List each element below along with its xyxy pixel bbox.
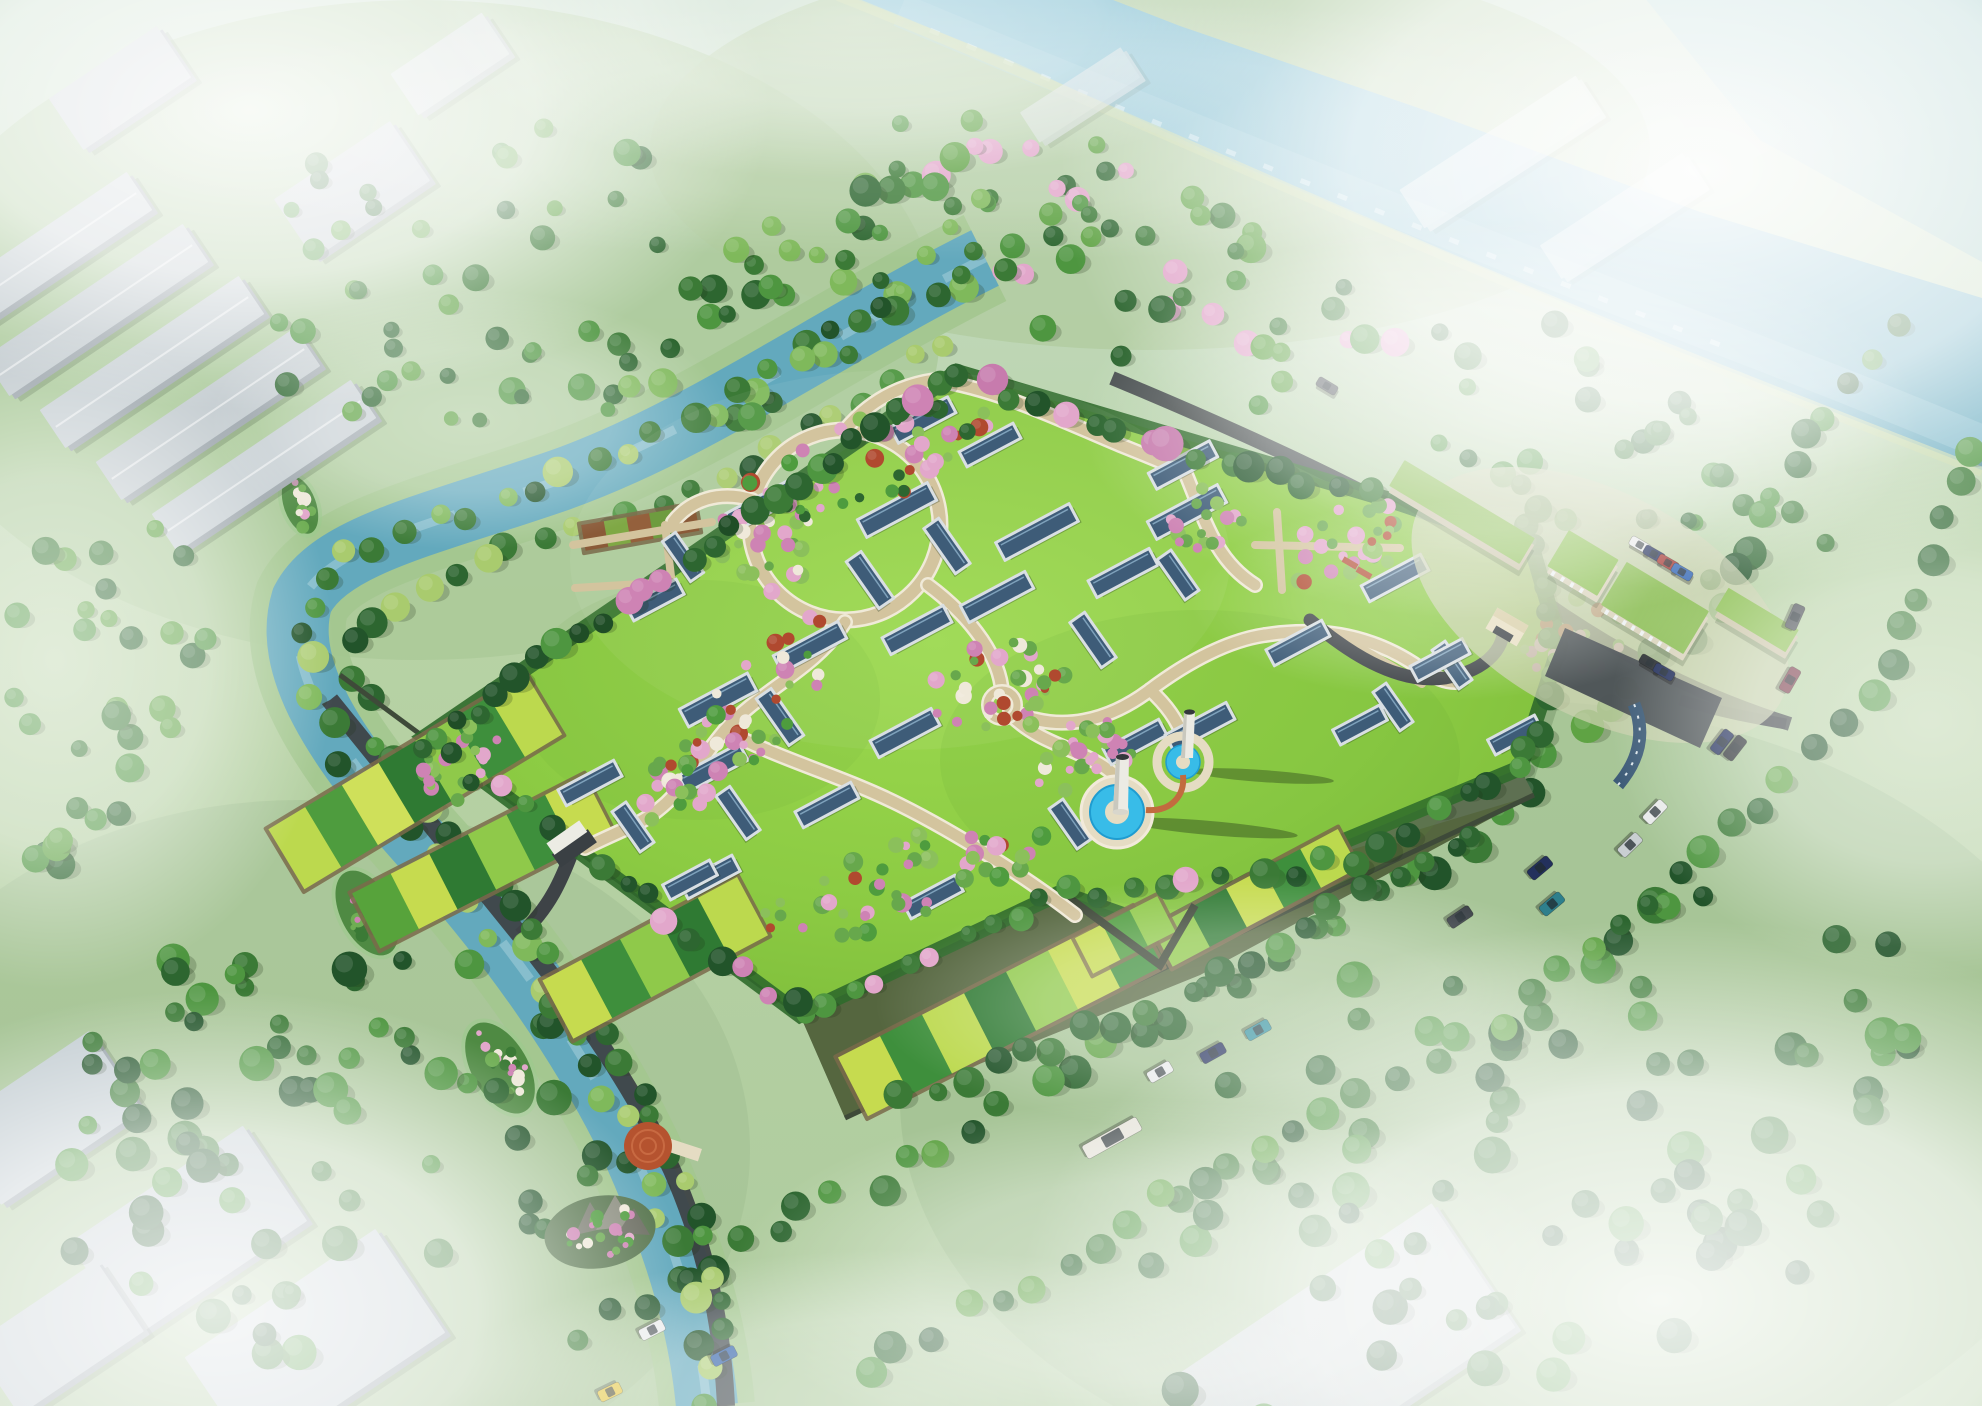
tree — [997, 696, 1011, 710]
tree-highlight — [761, 989, 770, 998]
tree — [416, 763, 431, 778]
tree — [796, 443, 810, 457]
tree-highlight — [334, 541, 346, 553]
tree-highlight — [640, 885, 650, 895]
tree-highlight — [744, 283, 759, 298]
tree — [798, 923, 808, 933]
tree-highlight — [591, 1088, 604, 1101]
tree-highlight — [755, 526, 764, 535]
tree-highlight — [765, 584, 773, 592]
tree-highlight — [619, 1107, 630, 1118]
tree-highlight — [641, 1107, 651, 1117]
tree — [732, 752, 747, 767]
tree-highlight — [848, 983, 857, 992]
tree — [739, 718, 750, 729]
tree-highlight — [708, 707, 718, 717]
tree-highlight — [957, 871, 966, 880]
tree-highlight — [727, 379, 740, 392]
tree-highlight — [473, 707, 483, 717]
tree-highlight — [833, 271, 847, 285]
tree-highlight — [328, 753, 341, 766]
tree-highlight — [992, 650, 1001, 659]
tree-highlight — [428, 730, 439, 741]
tree — [1058, 783, 1073, 798]
tree — [888, 837, 904, 853]
tree — [1037, 675, 1051, 689]
tree-highlight — [542, 817, 555, 830]
tree-highlight — [678, 1174, 687, 1183]
tree-highlight — [734, 958, 744, 968]
tree-highlight — [415, 741, 425, 751]
tree-highlight — [1393, 869, 1403, 879]
tree — [959, 682, 972, 695]
aerial-rendering: Aerial rendering of a green-roof park fa… — [0, 0, 1982, 1406]
tree — [966, 851, 980, 865]
tree-highlight — [503, 893, 519, 909]
tree-highlight — [872, 299, 883, 310]
tree — [981, 722, 990, 731]
tree-highlight — [464, 775, 473, 784]
tree — [855, 493, 864, 502]
tree-highlight — [845, 854, 855, 864]
tree-highlight — [792, 348, 805, 361]
tree-highlight — [788, 475, 802, 489]
tree — [914, 436, 930, 452]
tree-highlight — [448, 566, 459, 577]
tree-highlight — [947, 366, 959, 378]
top-haze — [0, 0, 1982, 260]
tree-highlight — [1056, 404, 1069, 417]
tree — [970, 657, 978, 665]
tree-highlight — [1461, 828, 1472, 839]
tree — [905, 465, 915, 475]
tree-highlight — [768, 635, 777, 644]
tree-highlight — [1032, 317, 1045, 330]
tree — [933, 709, 942, 718]
tree-highlight — [929, 285, 941, 297]
tree-highlight — [795, 332, 809, 346]
tree — [837, 498, 848, 509]
tree-highlight — [711, 949, 726, 964]
tree-highlight — [367, 739, 376, 748]
tree-highlight — [1253, 861, 1268, 876]
tree — [665, 759, 676, 770]
tree-highlight — [1462, 785, 1471, 794]
tree-highlight — [667, 780, 676, 789]
tree-highlight — [485, 684, 498, 697]
tree-highlight — [632, 580, 644, 592]
tower-opening — [1184, 709, 1195, 714]
tree — [891, 897, 905, 911]
tree — [1069, 742, 1081, 754]
tree — [1091, 764, 1102, 775]
tree — [451, 793, 465, 807]
tree — [756, 748, 765, 757]
tree — [771, 695, 780, 704]
tree — [793, 565, 804, 576]
tree — [742, 476, 757, 491]
tree — [741, 660, 751, 670]
tree-highlight — [863, 415, 878, 430]
tree-highlight — [1346, 853, 1359, 866]
tree-highlight — [921, 852, 931, 862]
tree-highlight — [866, 977, 875, 986]
tree — [1066, 766, 1074, 774]
tree-highlight — [761, 277, 773, 289]
tree — [1117, 739, 1128, 750]
tree-highlight — [720, 517, 730, 527]
tree — [1040, 752, 1053, 765]
tree — [1015, 849, 1030, 864]
tree — [1066, 721, 1076, 731]
tree-highlight — [681, 279, 693, 291]
tree-highlight — [1032, 890, 1041, 899]
tree-highlight — [539, 944, 550, 955]
tree-highlight — [767, 487, 782, 502]
tree — [984, 702, 997, 715]
tree-highlight — [419, 576, 433, 590]
tree-highlight — [874, 274, 882, 282]
tree — [645, 812, 659, 826]
tree-highlight — [1450, 840, 1459, 849]
tree-highlight — [1476, 775, 1490, 789]
tree-highlight — [1034, 828, 1044, 838]
tree — [777, 525, 792, 540]
tree — [893, 469, 905, 481]
tree — [885, 484, 898, 497]
tree-highlight — [360, 610, 375, 625]
tree — [903, 859, 913, 869]
tree-highlight — [700, 306, 713, 319]
tower-opening — [1116, 754, 1129, 760]
tree — [874, 879, 885, 890]
tree-highlight — [991, 869, 1001, 879]
tree-highlight — [622, 877, 630, 885]
tree — [1089, 752, 1098, 761]
tree-highlight — [850, 311, 862, 323]
tree-highlight — [841, 347, 850, 356]
tree — [813, 615, 826, 628]
tree — [749, 755, 759, 765]
tree — [777, 651, 790, 664]
tree-highlight — [679, 930, 691, 942]
tree-highlight — [1512, 759, 1523, 770]
tree-highlight — [867, 451, 876, 460]
tree-highlight — [227, 966, 237, 976]
tree-highlight — [449, 712, 458, 721]
tree — [734, 540, 743, 549]
tree — [781, 718, 793, 730]
tree-highlight — [636, 1085, 647, 1096]
tree-highlight — [1054, 741, 1063, 750]
tree-highlight — [710, 763, 720, 773]
tree-highlight — [896, 285, 905, 294]
tree — [1024, 702, 1033, 711]
tree-highlight — [1398, 825, 1410, 837]
tree-highlight — [1429, 798, 1441, 810]
tree-highlight — [384, 595, 399, 610]
tree-highlight — [571, 625, 581, 635]
tree — [674, 798, 687, 811]
tree-highlight — [395, 953, 404, 962]
tree — [803, 651, 811, 659]
tree-highlight — [1416, 853, 1426, 863]
tree — [838, 909, 848, 919]
tree — [681, 764, 693, 776]
tree-highlight — [706, 538, 717, 549]
tree — [1034, 664, 1044, 674]
tree — [739, 740, 748, 749]
tree — [920, 906, 931, 917]
tree-highlight — [519, 797, 528, 806]
tree — [760, 908, 770, 918]
tree-highlight — [1529, 723, 1543, 737]
tree-highlight — [786, 990, 801, 1005]
tree — [835, 928, 850, 943]
tree-highlight — [931, 1085, 940, 1094]
tree-highlight — [493, 777, 504, 788]
tree-highlight — [502, 665, 517, 680]
tree-highlight — [690, 1205, 704, 1219]
tree-highlight — [929, 673, 938, 682]
tree-highlight — [695, 1227, 705, 1237]
tree-highlight — [1012, 671, 1020, 679]
tree-highlight — [759, 361, 769, 371]
tree-highlight — [638, 795, 647, 804]
tree — [920, 840, 931, 851]
tree-highlight — [458, 952, 473, 967]
tree-highlight — [929, 455, 938, 464]
tree — [751, 730, 765, 744]
tree-highlight — [361, 540, 374, 553]
tree-highlight — [595, 615, 605, 625]
tree — [849, 927, 863, 941]
tree-highlight — [930, 373, 943, 386]
tree-highlight — [943, 427, 951, 435]
tree — [811, 680, 822, 691]
tree — [764, 561, 773, 570]
tree-highlight — [335, 955, 353, 973]
tree-highlight — [825, 455, 836, 466]
tree — [693, 738, 702, 747]
tree — [478, 755, 488, 765]
tree — [952, 717, 962, 727]
tree-highlight — [345, 630, 358, 643]
tree — [492, 735, 501, 744]
tree-highlight — [1024, 718, 1032, 726]
tree-highlight — [961, 425, 969, 433]
tree — [775, 910, 787, 922]
tree — [745, 566, 760, 581]
tree-highlight — [822, 896, 830, 904]
tree-highlight — [1640, 897, 1650, 907]
tree — [816, 504, 824, 512]
tree — [675, 786, 689, 800]
tree-highlight — [651, 571, 662, 582]
tree-highlight — [592, 857, 605, 870]
tree — [696, 726, 707, 737]
tree-highlight — [968, 642, 976, 650]
tree — [1086, 724, 1100, 738]
tree — [781, 538, 795, 552]
tree-highlight — [814, 344, 827, 357]
tree — [470, 746, 480, 756]
tree — [726, 705, 736, 715]
tree-highlight — [888, 400, 900, 412]
tree — [1009, 638, 1019, 648]
tree-highlight — [783, 456, 791, 464]
tree — [653, 757, 666, 770]
tree-highlight — [544, 631, 560, 647]
tree-highlight — [744, 498, 759, 513]
tree-highlight — [843, 430, 854, 441]
tree — [785, 680, 793, 688]
tree-highlight — [1312, 848, 1325, 861]
tree — [1012, 711, 1022, 721]
tree — [876, 863, 888, 875]
tree-highlight — [907, 446, 916, 455]
tree — [965, 831, 978, 844]
tree-highlight — [980, 367, 996, 383]
tree-highlight — [580, 1056, 592, 1068]
tree-highlight — [1059, 877, 1071, 889]
tree — [710, 736, 724, 750]
tree-highlight — [905, 387, 921, 403]
tree — [943, 452, 953, 462]
tree-highlight — [1368, 834, 1384, 850]
tower-base — [1113, 809, 1129, 815]
tree-highlight — [480, 931, 489, 940]
tree-highlight — [443, 744, 454, 755]
tree — [848, 871, 862, 885]
tree — [951, 670, 961, 680]
tree — [819, 876, 829, 886]
tree — [1035, 778, 1044, 787]
tree — [679, 739, 692, 752]
tree-highlight — [438, 824, 451, 837]
tree-highlight — [886, 1082, 901, 1097]
tree-highlight — [727, 734, 736, 743]
tree-highlight — [1513, 738, 1526, 751]
tree — [772, 736, 781, 745]
tree-highlight — [1027, 393, 1040, 406]
tree-highlight — [523, 920, 534, 931]
tree-highlight — [699, 785, 708, 794]
tree — [860, 911, 870, 921]
tree-highlight — [908, 346, 917, 355]
tree — [712, 689, 722, 699]
tree-highlight — [954, 267, 963, 276]
tree — [812, 668, 824, 680]
tree — [997, 712, 1011, 726]
tree-highlight — [989, 838, 999, 848]
tree — [766, 923, 775, 932]
tree-highlight — [996, 260, 1008, 272]
tree-highlight — [934, 337, 945, 348]
tree-highlight — [608, 1051, 622, 1065]
tree-highlight — [720, 307, 729, 316]
tree-highlight — [685, 550, 697, 562]
tree-highlight — [823, 322, 832, 331]
tree — [978, 407, 991, 420]
tree-highlight — [912, 829, 920, 837]
tree — [898, 485, 910, 497]
tree-highlight — [1101, 723, 1109, 731]
tree — [776, 898, 786, 908]
tree-highlight — [1000, 391, 1011, 402]
tree-highlight — [653, 910, 667, 924]
tree-highlight — [795, 542, 803, 550]
tree-highlight — [527, 647, 539, 659]
